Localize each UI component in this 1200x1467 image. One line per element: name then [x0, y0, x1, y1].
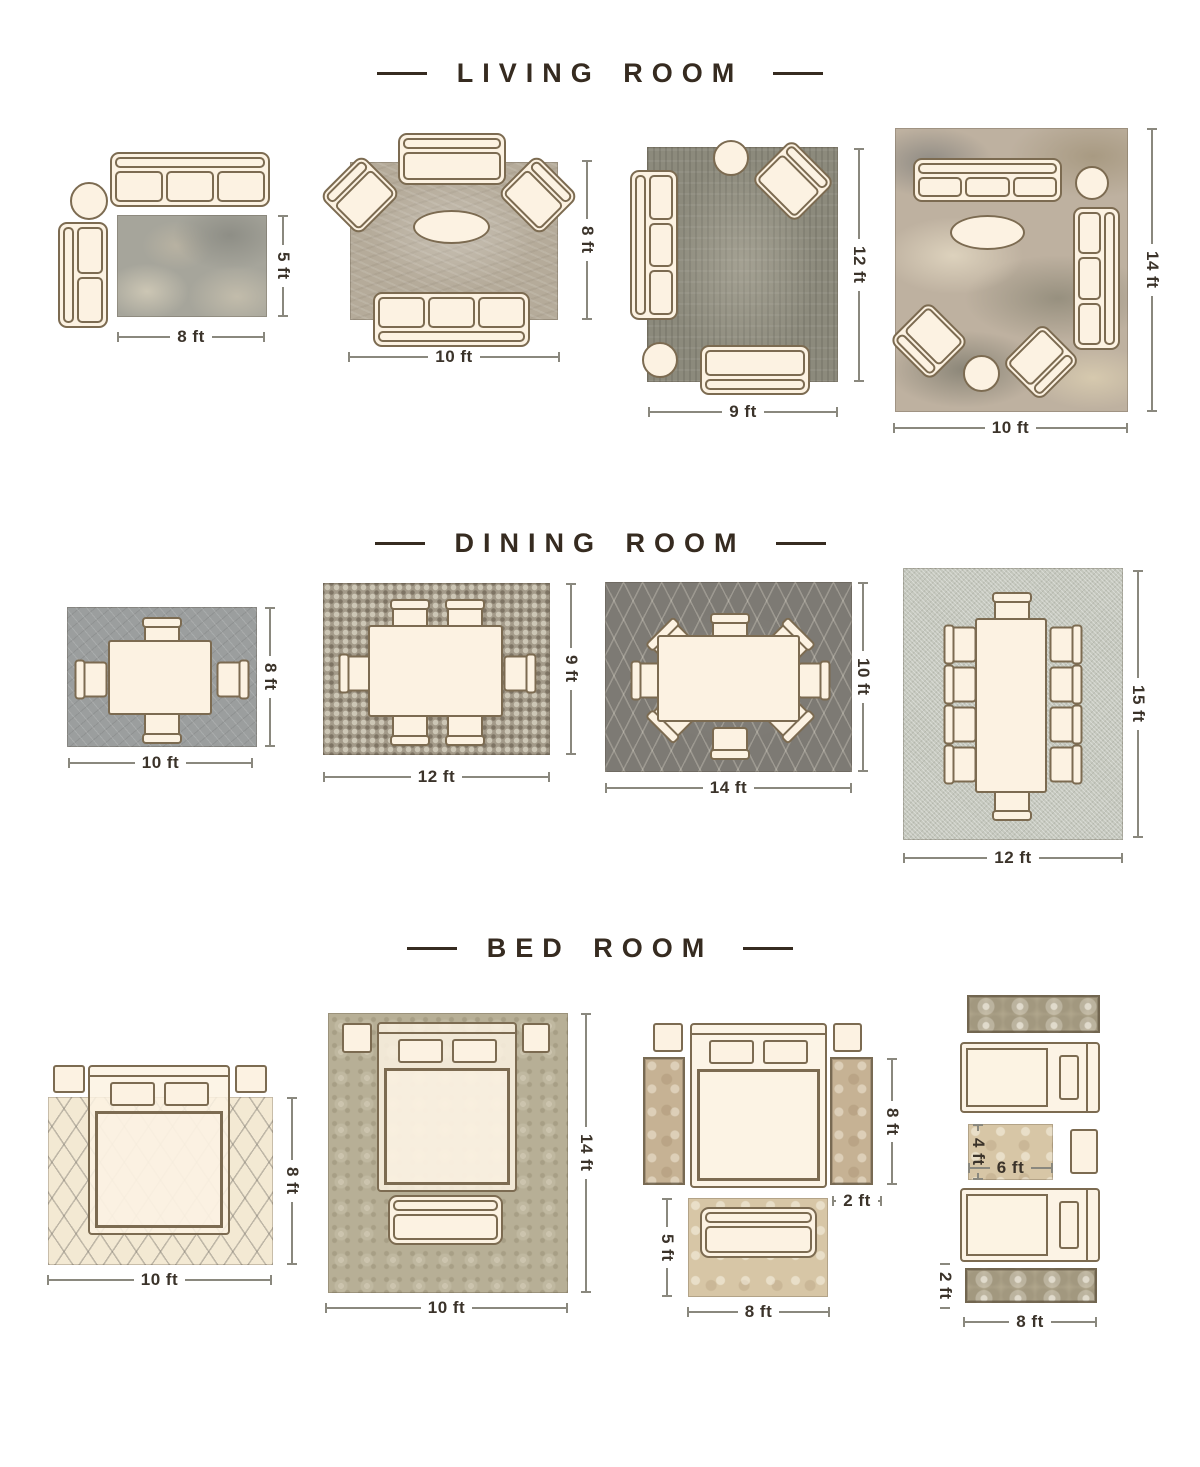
bed-room-layout-4: 4 ft 6 ft 2 ft 8 ft: [935, 988, 1200, 1333]
rug-height-label: 8 ft: [282, 1160, 302, 1202]
foot-rug-width-dimension: 8 ft: [687, 1302, 830, 1322]
duvet: [95, 1111, 223, 1228]
runner-width-label: 2 ft: [935, 1265, 955, 1307]
rug-width-label: 10 ft: [985, 418, 1036, 438]
rug: [117, 215, 267, 317]
rug-height-label: 12 ft: [849, 239, 869, 290]
headboard: [692, 1025, 825, 1035]
living-room-layout-1: 5 ft 8 ft: [50, 145, 340, 360]
dining-chair: [948, 747, 977, 783]
rug-height-dimension: 14 ft: [576, 1013, 596, 1293]
rug-width-dimension: 8 ft: [117, 327, 265, 347]
living-room-layout-3: 12 ft 9 ft: [630, 140, 890, 435]
rug-height-label: 15 ft: [1128, 678, 1148, 729]
bed: [88, 1065, 230, 1235]
dining-chair: [948, 627, 977, 663]
center-rug-width-label: 6 ft: [990, 1158, 1032, 1178]
rug-height-dimension: 15 ft: [1128, 570, 1148, 838]
nightstand: [342, 1023, 372, 1053]
bench: [700, 1207, 817, 1258]
pillow: [1059, 1055, 1079, 1101]
sofa: [110, 152, 270, 207]
twin-bed: [960, 1188, 1100, 1262]
dining-chair: [1050, 627, 1079, 663]
dining-chair: [79, 662, 108, 698]
runner-rug: [965, 1268, 1097, 1303]
nightstand: [1070, 1129, 1098, 1174]
title-dash: [743, 947, 793, 950]
section-title-dining-room: DINING ROOM: [0, 528, 1200, 559]
nightstand: [235, 1065, 267, 1093]
center-rug-width-dimension: 6 ft: [968, 1158, 1053, 1178]
dining-room-layout-1: 8 ft 10 ft: [55, 595, 300, 790]
runner-rug: [643, 1057, 685, 1185]
dining-chair: [948, 707, 977, 743]
rug-width-dimension: 12 ft: [903, 848, 1123, 868]
dining-table: [108, 640, 212, 715]
loveseat: [700, 345, 810, 395]
runner-rug: [967, 995, 1100, 1033]
rug-width-dimension: 10 ft: [68, 753, 253, 773]
rug-width-dimension: 10 ft: [325, 1298, 568, 1318]
duvet: [966, 1194, 1048, 1256]
rug-height-dimension: 8 ft: [577, 160, 597, 320]
title-dash: [776, 542, 826, 545]
title-dash: [375, 542, 425, 545]
nightstand: [53, 1065, 85, 1093]
pillow: [452, 1039, 497, 1063]
runner-width-dimension: 2 ft: [935, 1263, 955, 1307]
pillow: [110, 1082, 155, 1106]
rug-height-dimension: 10 ft: [853, 582, 873, 772]
foot-rug-width-label: 8 ft: [738, 1302, 780, 1322]
pillow: [709, 1040, 754, 1064]
nightstand: [522, 1023, 550, 1053]
rug-width-label: 9 ft: [722, 402, 764, 422]
headboard: [90, 1067, 228, 1077]
oval-coffee-table: [950, 215, 1025, 250]
rug-height-label: 14 ft: [576, 1127, 596, 1178]
dining-room-layout-2: 9 ft 12 ft: [315, 575, 585, 790]
rug-height-dimension: 9 ft: [561, 583, 581, 755]
rug-width-dimension: 10 ft: [893, 418, 1128, 438]
nightstand: [833, 1023, 862, 1052]
dining-table: [975, 618, 1047, 793]
headboard: [1086, 1044, 1098, 1111]
dining-chair: [712, 727, 748, 756]
rug-height-label: 14 ft: [1142, 244, 1162, 295]
rug-height-dimension: 8 ft: [282, 1097, 302, 1265]
section-title-bed-room: BED ROOM: [0, 933, 1200, 964]
foot-rug-height-dimension: 5 ft: [657, 1198, 677, 1297]
rug-width-label: 10 ft: [134, 1270, 185, 1290]
dining-chair: [1050, 707, 1079, 743]
dining-chair: [1050, 747, 1079, 783]
dining-table: [368, 625, 503, 717]
duvet: [384, 1068, 510, 1185]
section-title-text: BED ROOM: [487, 933, 714, 964]
round-side-table: [642, 342, 678, 378]
dining-chair: [504, 656, 533, 692]
title-dash: [407, 947, 457, 950]
rug-width-label: 8 ft: [170, 327, 212, 347]
section-title-living-room: LIVING ROOM: [0, 58, 1200, 89]
foot-rug-height-label: 5 ft: [657, 1227, 677, 1269]
runner-rug: [830, 1057, 873, 1185]
rug-height-label: 5 ft: [273, 245, 293, 287]
pillow: [763, 1040, 808, 1064]
rug-width-dimension: 12 ft: [323, 767, 550, 787]
sofa: [1073, 207, 1120, 350]
living-room-layout-4: 14 ft 10 ft: [885, 120, 1180, 445]
pillow: [1059, 1201, 1079, 1249]
dining-room-layout-4: 15 ft 12 ft: [895, 562, 1155, 872]
runner-height-dimension: 8 ft: [882, 1058, 902, 1185]
chaise: [58, 222, 108, 328]
bench: [388, 1195, 503, 1245]
sofa: [373, 292, 530, 347]
dining-chair: [144, 711, 180, 740]
round-side-table: [963, 355, 1000, 392]
rug-height-dimension: 12 ft: [849, 148, 869, 382]
rug-width-label: 10 ft: [135, 753, 186, 773]
headboard: [379, 1024, 515, 1034]
rug-width-label: 10 ft: [428, 347, 479, 367]
dining-chair: [798, 663, 827, 699]
rug-height-label: 8 ft: [260, 656, 280, 698]
rug-width-label: 10 ft: [421, 1298, 472, 1318]
nightstand: [653, 1023, 683, 1052]
round-side-table: [713, 140, 749, 176]
loveseat: [398, 133, 506, 185]
bed-room-layout-3: 8 ft 2 ft 5 ft 8 ft: [640, 1015, 902, 1327]
rug-height-dimension: 5 ft: [273, 215, 293, 317]
rug-width-dimension: 10 ft: [47, 1270, 272, 1290]
section-title-text: DINING ROOM: [455, 528, 746, 559]
sofa: [630, 170, 678, 320]
title-dash: [377, 72, 427, 75]
duvet: [966, 1048, 1048, 1107]
rug-height-label: 9 ft: [561, 648, 581, 690]
twin-bed: [960, 1042, 1100, 1113]
rug-height-dimension: 14 ft: [1142, 128, 1162, 412]
rug-width-label: 12 ft: [987, 848, 1038, 868]
oval-coffee-table: [413, 210, 490, 244]
runner-width-label: 2 ft: [836, 1191, 878, 1211]
runner-length-label: 8 ft: [1009, 1312, 1051, 1332]
rug-width-dimension: 9 ft: [648, 402, 838, 422]
runner-width-dimension: 2 ft: [832, 1191, 882, 1211]
duvet: [697, 1069, 820, 1181]
rug-height-dimension: 8 ft: [260, 607, 280, 747]
bed-room-layout-1: 8 ft 10 ft: [40, 1058, 310, 1298]
section-title-text: LIVING ROOM: [457, 58, 744, 89]
rug-width-label: 14 ft: [703, 778, 754, 798]
dining-chair: [1050, 667, 1079, 703]
living-room-layout-2: 8 ft 10 ft: [330, 130, 620, 375]
bed: [377, 1022, 517, 1192]
dining-chair: [392, 713, 428, 742]
bed-room-layout-2: 14 ft 10 ft: [320, 1005, 600, 1320]
runner-length-dimension: 8 ft: [963, 1312, 1097, 1332]
headboard: [1086, 1190, 1098, 1260]
rug-width-label: 12 ft: [411, 767, 462, 787]
round-side-table: [1075, 166, 1109, 200]
rug-width-dimension: 14 ft: [605, 778, 852, 798]
dining-chair: [447, 713, 483, 742]
dining-chair: [217, 662, 246, 698]
bed: [690, 1023, 827, 1188]
pillow: [164, 1082, 209, 1106]
round-side-table: [70, 182, 108, 220]
sofa: [913, 158, 1062, 202]
rug-width-dimension: 10 ft: [348, 347, 560, 367]
title-dash: [773, 72, 823, 75]
dining-chair: [948, 667, 977, 703]
pillow: [398, 1039, 443, 1063]
oval-dining-table: [657, 635, 800, 722]
rug-size-guide: LIVING ROOM 5 ft 8 ft 8 ft 10 ft 12 ft 9…: [0, 0, 1200, 1467]
dining-room-layout-3: 10 ft 14 ft: [595, 575, 880, 805]
rug-height-label: 10 ft: [853, 651, 873, 702]
runner-height-label: 8 ft: [882, 1101, 902, 1143]
rug-height-label: 8 ft: [577, 219, 597, 261]
